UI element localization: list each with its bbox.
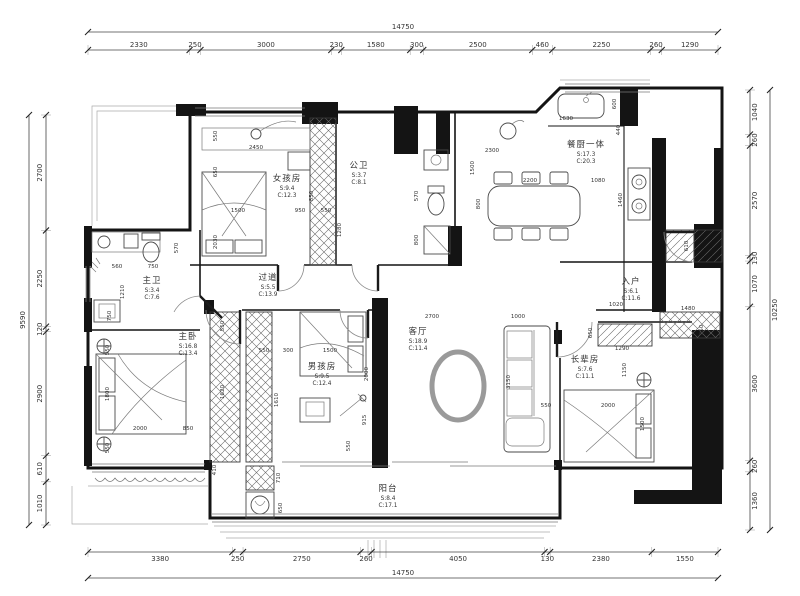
segment-dim: 130: [541, 555, 554, 563]
segment-dim: 1010: [36, 494, 44, 512]
interior-dim: 650: [588, 327, 594, 338]
interior-dim: 440: [616, 124, 622, 135]
segment-dim: 2500: [469, 41, 487, 49]
interior-dim: 750: [148, 264, 159, 270]
interior-dim: 2700: [425, 314, 440, 320]
segment-dim: 2900: [36, 385, 44, 403]
segment-dim: 460: [536, 41, 549, 49]
segment-dim: 3000: [257, 41, 275, 49]
segment-dim: 260: [751, 133, 759, 146]
room-label-public-bath: 公卫S:3.7C:8.1: [349, 161, 368, 186]
kitchen-sink: [558, 92, 604, 118]
interior-dim: 1500: [470, 160, 476, 175]
interior-dim: 800: [414, 234, 420, 245]
room-name: 主卫: [142, 275, 161, 286]
ceiling-symbol: [637, 373, 651, 387]
interior-dim: 2300: [485, 148, 500, 154]
interior-dim: 650: [213, 166, 219, 177]
interior-dim: 550: [220, 320, 226, 331]
interior-dim: 915: [362, 414, 368, 425]
room-label-living-room: 客厅S:18.9C:11.4: [408, 326, 427, 352]
room-area: S:3.7: [352, 173, 367, 179]
interior-dim: 550: [259, 348, 270, 354]
floor-plan-svg: 2330250300023015803002500460225026012901…: [0, 0, 800, 596]
segment-dim: 130: [751, 252, 759, 265]
interior-dim: 1500: [323, 348, 338, 354]
segment-dim: 2380: [592, 555, 610, 563]
pendant-light: [500, 120, 524, 139]
interior-dim: 570: [174, 242, 180, 253]
room-area: S:9.5: [315, 374, 330, 380]
interior-dim: 1630: [559, 116, 574, 122]
total-dim: 14750: [392, 23, 414, 31]
room-label-master-bath: 主卫S:3.4C:7.6: [142, 275, 161, 301]
interior-dim: 1610: [274, 392, 280, 407]
room-label-boys-room: 男孩房S:9.5C:12.4: [308, 361, 337, 387]
room-ceiling: C:12.4: [313, 381, 332, 387]
living-rug: [432, 352, 484, 420]
room-area: S:16.8: [179, 344, 198, 350]
stove: [628, 168, 650, 220]
floor-plan-canvas: 2330250300023015803002500460225026012901…: [0, 0, 800, 596]
room-label-balcony: 阳台S:8.4C:17.1: [378, 483, 397, 509]
room-ceiling: C:17.1: [379, 503, 398, 509]
segment-dim: 2750: [293, 555, 311, 563]
room-ceiling: C:13.4: [179, 351, 198, 357]
windows: [86, 84, 650, 522]
interior-dim: 300: [283, 348, 294, 354]
interior-dim: 1000: [511, 314, 526, 320]
segment-dim: 610: [36, 462, 44, 475]
room-ceiling: C:7.6: [144, 295, 160, 301]
segment-dim: 1070: [751, 275, 759, 293]
interior-dim: 950: [295, 208, 306, 214]
interior-dim: 550: [541, 403, 552, 409]
room-name: 男孩房: [308, 361, 337, 372]
public-bath-door: [352, 265, 378, 291]
building-outline: [72, 80, 650, 558]
room-area: S:5.5: [261, 285, 276, 291]
room-name: 过道: [258, 272, 277, 283]
interior-dim: 1020: [609, 302, 624, 308]
room-area: S:7.6: [578, 367, 593, 373]
interior-dim: 550: [321, 208, 332, 214]
segment-dim: 1040: [751, 103, 759, 121]
segment-dim: 4050: [449, 555, 467, 563]
room-name: 长辈房: [571, 354, 600, 365]
segment-dim: 2250: [592, 41, 610, 49]
interior-dim: 2450: [249, 145, 264, 151]
interior-dim: 1280: [337, 222, 343, 237]
room-label-elders-room: 长辈房S:7.6C:11.1: [571, 354, 600, 380]
boys-room-door: [340, 310, 368, 338]
interior-dim: 410: [212, 464, 218, 475]
segment-dim: 260: [751, 460, 759, 473]
girls-room-door: [278, 265, 304, 291]
boys-desk: [300, 394, 366, 422]
interior-dim: 850: [309, 190, 315, 201]
interior-dim: 1480: [681, 306, 696, 312]
segment-dim: 260: [649, 41, 662, 49]
room-area: S:6.1: [624, 289, 639, 295]
room-ceiling: C:12.3: [278, 193, 297, 199]
room-name: 女孩房: [273, 173, 302, 184]
room-label-hallway: 过道S:5.5C:13.9: [258, 272, 277, 298]
room-ceiling: C:8.1: [351, 180, 367, 186]
interior-dimension-labels: 5506502450203015009505501280850570800560…: [105, 98, 705, 513]
interior-dim: 550: [105, 442, 111, 453]
room-ceiling: C:20.3: [577, 159, 596, 165]
interior-dim: 1460: [618, 192, 624, 207]
room-name: 主卧: [178, 331, 197, 342]
segment-dim: 120: [36, 323, 44, 336]
room-area: S:9.4: [280, 186, 295, 192]
interior-walls: [88, 112, 692, 468]
public-bath-fixtures: [424, 150, 450, 254]
interior-dim: 2000: [601, 403, 616, 409]
segment-dim: 2330: [130, 41, 148, 49]
girls-bed: [202, 172, 266, 256]
segment-dim: 3600: [751, 375, 759, 393]
room-name: 入户: [621, 276, 640, 287]
interior-dim: 550: [105, 344, 111, 355]
total-dim: 10250: [771, 299, 779, 321]
total-dim: 14750: [392, 569, 414, 577]
interior-dim: 1290: [615, 346, 630, 352]
room-label-master-bedroom: 主卧S:16.8C:13.4: [178, 331, 197, 357]
segment-dim: 1290: [681, 41, 699, 49]
interior-dim: 3150: [506, 374, 512, 389]
interior-dim: 610: [684, 240, 690, 251]
interior-dim: 1080: [591, 178, 606, 184]
room-name: 阳台: [378, 483, 397, 494]
segment-dim: 2250: [36, 270, 44, 288]
room-area: S:8.4: [381, 496, 396, 502]
interior-dim: 2030: [213, 234, 219, 249]
room-area: S:17.3: [577, 152, 596, 158]
elders-room-door: [557, 322, 592, 357]
interior-dim: 550: [346, 440, 352, 451]
segment-dim: 1360: [751, 492, 759, 510]
room-label-girls-room: 女孩房S:9.4C:12.3: [273, 173, 302, 199]
room-ceiling: C:13.9: [259, 292, 278, 298]
interior-dim: 560: [112, 264, 123, 270]
interior-dim: 800: [476, 198, 482, 209]
room-ceiling: C:11.4: [409, 346, 428, 352]
room-name: 公卫: [349, 161, 368, 171]
interior-dim: 1500: [231, 208, 246, 214]
room-name: 客厅: [408, 326, 427, 337]
interior-dim: 1800: [105, 386, 111, 401]
segment-dim: 2700: [36, 164, 44, 182]
interior-dim: 2200: [523, 178, 538, 184]
segment-dim: 2570: [751, 192, 759, 210]
total-dim: 9590: [19, 311, 27, 329]
interior-dim: 550: [213, 130, 219, 141]
interior-dim: 570: [414, 190, 420, 201]
segment-dim: 300: [410, 41, 423, 49]
interior-dim: 2000: [364, 366, 370, 381]
segment-dim: 250: [231, 555, 244, 563]
segment-dim: 260: [359, 555, 372, 563]
interior-dim: 1620: [220, 384, 226, 399]
interior-dim: 710: [276, 472, 282, 483]
room-ceiling: C:11.1: [576, 374, 595, 380]
room-ceiling: C:11.6: [622, 296, 641, 302]
interior-dim: 2000: [133, 426, 148, 432]
segment-dim: 250: [188, 41, 201, 49]
room-area: S:3.4: [145, 288, 160, 294]
interior-dim: 1500: [640, 416, 646, 431]
interior-dim: 350: [699, 324, 705, 335]
room-label-entry: 入户S:6.1C:11.6: [621, 276, 640, 302]
segment-dim: 3380: [151, 555, 169, 563]
room-area: S:18.9: [409, 339, 428, 345]
room-label-dining-kitchen: 餐厨一体S:17.3C:20.3: [567, 139, 605, 165]
interior-dim: 600: [612, 98, 618, 109]
segment-dim: 1580: [367, 41, 385, 49]
interior-dim: 850: [183, 426, 194, 432]
room-name: 餐厨一体: [567, 139, 605, 150]
segment-dim: 1550: [676, 555, 694, 563]
interior-dim: 650: [278, 502, 284, 513]
interior-dim: 1150: [622, 362, 628, 377]
segment-dim: 230: [330, 41, 343, 49]
interior-dim: 1210: [120, 284, 126, 299]
interior-dim: 750: [107, 310, 113, 321]
